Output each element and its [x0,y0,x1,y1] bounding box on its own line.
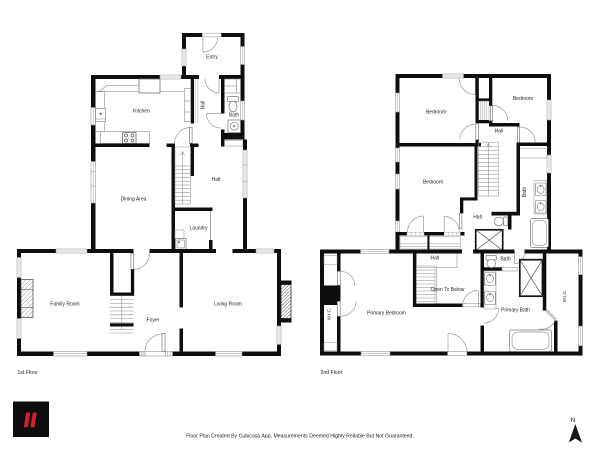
svg-text:Open To Below: Open To Below [431,287,465,293]
svg-text:Dining Area: Dining Area [121,197,147,203]
svg-text:Kitchen: Kitchen [133,109,150,115]
svg-text:Bath: Bath [522,187,528,198]
svg-text:Family Room: Family Room [50,302,79,308]
svg-text:1st Floor: 1st Floor [18,370,38,376]
svg-text:W.I.C.: W.I.C. [562,290,567,303]
svg-text:W.I.C.: W.I.C. [327,308,332,321]
svg-text:Hall: Hall [430,256,439,262]
svg-text:Primary Bath: Primary Bath [501,308,530,314]
svg-text:Bedroom: Bedroom [426,110,446,116]
svg-text:Bedroom: Bedroom [513,96,533,102]
svg-text:N: N [571,417,576,424]
svg-text:Bath: Bath [500,257,511,263]
svg-text:Hall: Hall [212,177,221,183]
svg-text:Hall: Hall [495,129,504,135]
svg-text:Laundry: Laundry [189,226,208,232]
svg-text:Entry: Entry [206,55,218,61]
svg-text:Primary Bedroom: Primary Bedroom [367,311,406,317]
svg-text:Hall: Hall [473,215,482,221]
svg-text:Bath: Bath [229,113,240,119]
svg-text:Floor Plan Created By Cubicasa: Floor Plan Created By Cubicasa App. Meas… [186,434,414,440]
svg-text:Bedroom: Bedroom [423,180,443,186]
svg-text:Living Room: Living Room [214,302,242,308]
svg-text:2nd Floor: 2nd Floor [321,370,343,376]
svg-text:Hall: Hall [201,101,207,110]
svg-text:Foyer: Foyer [147,318,160,324]
